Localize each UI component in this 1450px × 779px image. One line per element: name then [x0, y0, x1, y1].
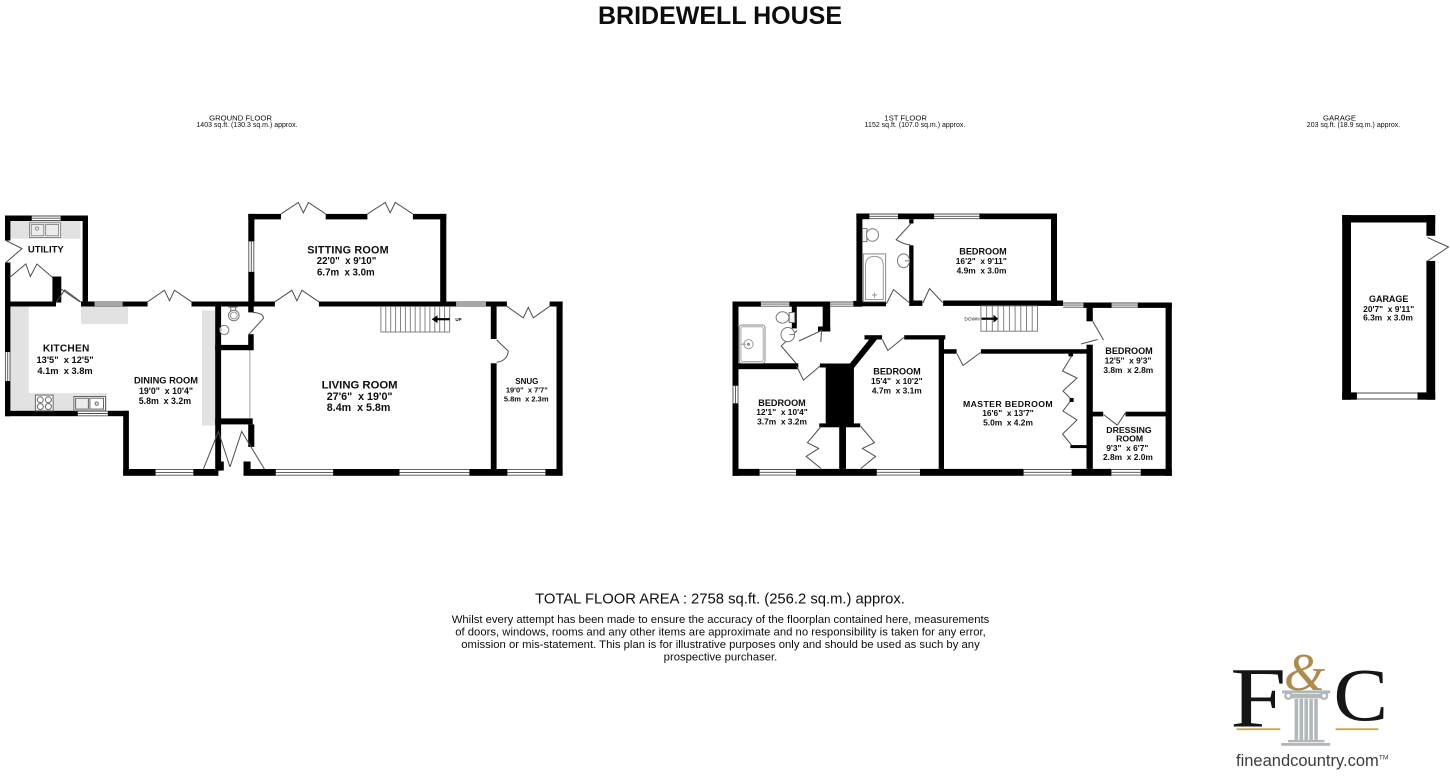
- svg-text:19'0" x 7'7": 19'0" x 7'7": [506, 386, 548, 395]
- svg-text:8.4m x 5.8m: 8.4m x 5.8m: [327, 402, 391, 414]
- svg-text:LIVING ROOM: LIVING ROOM: [322, 380, 398, 392]
- svg-text:F: F: [1230, 651, 1286, 746]
- svg-text:6.3m x 3.0m: 6.3m x 3.0m: [1363, 313, 1413, 323]
- svg-text:5.8m x 3.2m: 5.8m x 3.2m: [139, 396, 192, 406]
- svg-text:22'0" x 9'10": 22'0" x 9'10": [317, 256, 377, 267]
- svg-text:1152 sq.ft. (107.0 sq.m.) appr: 1152 sq.ft. (107.0 sq.m.) approx.: [865, 122, 966, 129]
- svg-text:prospective purchaser.: prospective purchaser.: [664, 651, 778, 663]
- svg-text:6.7m x 3.0m: 6.7m x 3.0m: [317, 268, 375, 279]
- svg-text:13'5" x 12'5": 13'5" x 12'5": [37, 355, 94, 365]
- svg-text:omission or mis-statement. Thi: omission or mis-statement. This plan is …: [461, 639, 980, 651]
- svg-text:3.7m x 3.2m: 3.7m x 3.2m: [757, 417, 807, 427]
- svg-text:KITCHEN: KITCHEN: [43, 343, 90, 354]
- svg-text:ROOM: ROOM: [1116, 433, 1143, 443]
- svg-text:5.0m x 4.2m: 5.0m x 4.2m: [983, 418, 1033, 428]
- svg-text:DOWN: DOWN: [964, 316, 980, 322]
- svg-text:1403 sq.ft. (130.3 sq.m.) appr: 1403 sq.ft. (130.3 sq.m.) approx.: [196, 122, 297, 129]
- svg-text:15'4" x 10'2": 15'4" x 10'2": [871, 376, 923, 386]
- svg-text:GARAGE: GARAGE: [1323, 113, 1356, 122]
- svg-text:TOTAL FLOOR AREA : 2758 sq.ft.: TOTAL FLOOR AREA : 2758 sq.ft. (256.2 sq…: [535, 592, 905, 608]
- svg-text:C: C: [1334, 653, 1389, 736]
- svg-text:4.1m x 3.8m: 4.1m x 3.8m: [37, 366, 92, 376]
- svg-text:3.8m x 2.8m: 3.8m x 2.8m: [1103, 365, 1153, 375]
- svg-text:SITTING ROOM: SITTING ROOM: [307, 244, 389, 256]
- svg-text:27'6" x 19'0": 27'6" x 19'0": [327, 391, 393, 403]
- svg-text:5.8m x 2.3m: 5.8m x 2.3m: [504, 394, 549, 403]
- svg-text:203 sq.ft. (18.9 sq.m.) approx: 203 sq.ft. (18.9 sq.m.) approx.: [1307, 122, 1400, 129]
- svg-text:UP: UP: [455, 317, 461, 322]
- svg-text:BEDROOM: BEDROOM: [1105, 346, 1153, 356]
- svg-text:2.8m x 2.0m: 2.8m x 2.0m: [1103, 452, 1153, 462]
- svg-text:GROUND FLOOR: GROUND FLOOR: [209, 113, 272, 122]
- svg-text:DINING ROOM: DINING ROOM: [134, 375, 198, 385]
- svg-text:4.7m x 3.1m: 4.7m x 3.1m: [872, 386, 922, 396]
- svg-text:BRIDEWELL HOUSE: BRIDEWELL HOUSE: [598, 2, 842, 30]
- svg-text:UTILITY: UTILITY: [28, 245, 65, 256]
- svg-text:1ST FLOOR: 1ST FLOOR: [884, 113, 927, 122]
- svg-text:Whilst every attempt has been: Whilst every attempt has been made to en…: [452, 614, 990, 626]
- svg-text:fineandcountry.comTM: fineandcountry.comTM: [1236, 752, 1389, 770]
- svg-text:of doors, windows, rooms and a: of doors, windows, rooms and any other i…: [455, 626, 986, 638]
- svg-text:GARAGE: GARAGE: [1369, 294, 1409, 304]
- svg-text:4.9m x 3.0m: 4.9m x 3.0m: [957, 265, 1007, 275]
- svg-text:19'0" x 10'4": 19'0" x 10'4": [139, 386, 193, 396]
